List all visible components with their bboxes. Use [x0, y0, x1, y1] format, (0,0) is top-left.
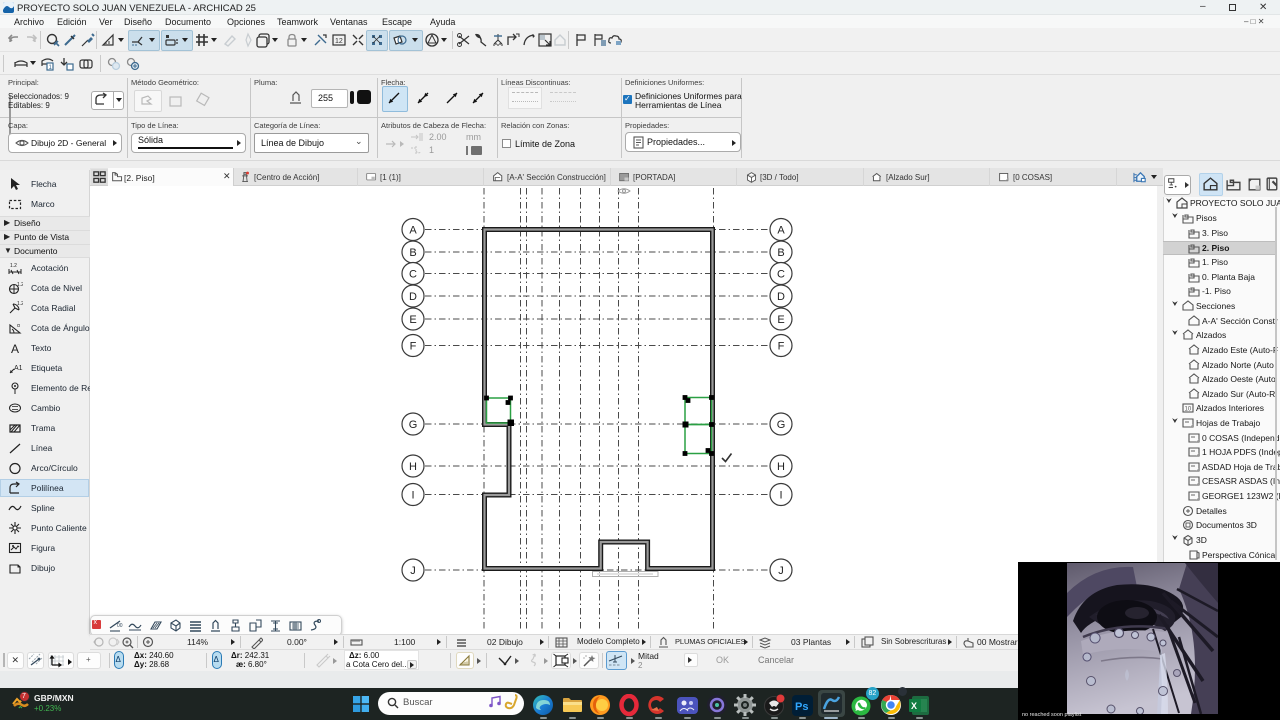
- svg-text:E: E: [777, 314, 784, 326]
- svg-text:H: H: [409, 461, 417, 473]
- svg-text:G: G: [777, 419, 786, 431]
- svg-text:J: J: [778, 565, 784, 577]
- svg-text:D: D: [409, 291, 417, 303]
- svg-text:1.2: 1.2: [17, 282, 23, 288]
- svg-text:10: 10: [1185, 407, 1192, 413]
- svg-text:α: α: [17, 323, 20, 329]
- svg-text:J: J: [410, 565, 416, 577]
- svg-text:B: B: [409, 247, 416, 259]
- svg-text:A: A: [409, 225, 417, 237]
- svg-text:00: 00: [117, 623, 123, 629]
- svg-text:A: A: [777, 225, 785, 237]
- svg-text:X: X: [911, 701, 917, 711]
- svg-text:C: C: [409, 269, 417, 281]
- svg-text:F: F: [410, 341, 417, 353]
- svg-text:A1: A1: [14, 365, 23, 372]
- svg-text:B: B: [777, 247, 784, 259]
- svg-text:12: 12: [335, 38, 343, 45]
- svg-text:I: I: [411, 490, 414, 502]
- svg-text:Ps: Ps: [795, 701, 808, 713]
- svg-text:F: F: [778, 341, 785, 353]
- svg-text:E: E: [409, 314, 416, 326]
- svg-text:1.2: 1.2: [10, 263, 17, 269]
- svg-text:D: D: [777, 291, 785, 303]
- svg-text:C: C: [777, 269, 785, 281]
- svg-text:G: G: [409, 419, 418, 431]
- svg-text:I: I: [779, 490, 782, 502]
- svg-text:A: A: [11, 342, 19, 356]
- svg-text:H: H: [777, 461, 785, 473]
- svg-text:1.2: 1.2: [17, 301, 23, 307]
